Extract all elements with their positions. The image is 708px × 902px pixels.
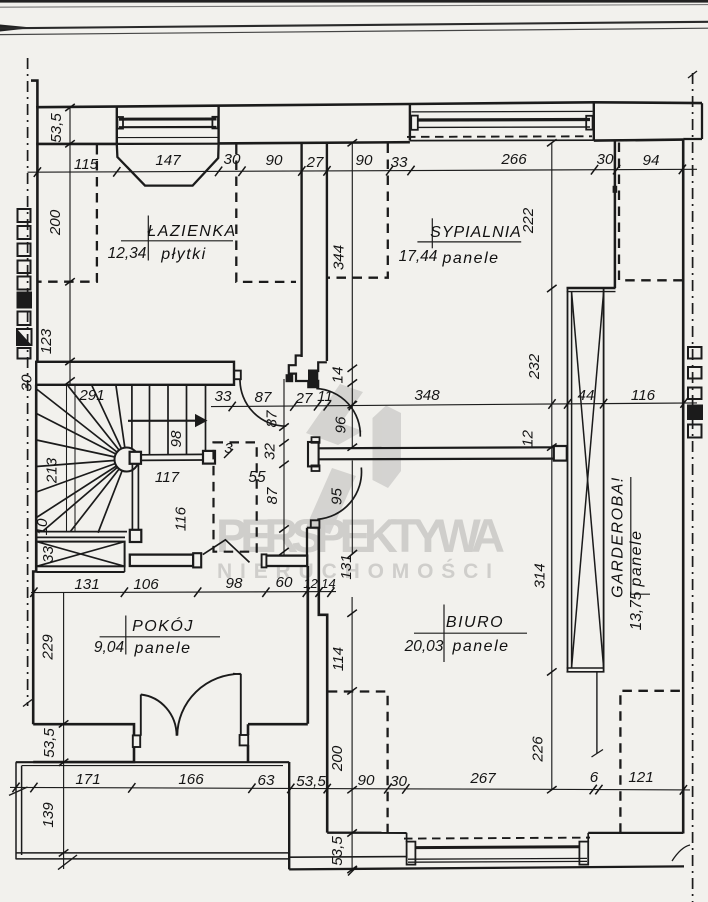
svg-text:171: 171 bbox=[75, 771, 100, 788]
svg-text:11: 11 bbox=[317, 388, 333, 405]
svg-text:96: 96 bbox=[333, 416, 350, 433]
svg-text:12: 12 bbox=[520, 430, 537, 447]
svg-text:344: 344 bbox=[331, 245, 348, 270]
svg-text:panele: panele bbox=[451, 638, 509, 655]
svg-text:10: 10 bbox=[34, 518, 51, 535]
svg-text:14: 14 bbox=[330, 367, 347, 384]
svg-text:232: 232 bbox=[526, 353, 543, 380]
svg-text:30: 30 bbox=[390, 773, 407, 790]
svg-text:200: 200 bbox=[47, 209, 64, 236]
svg-text:226: 226 bbox=[530, 736, 547, 763]
svg-text:PERSPEKTYWA: PERSPEKTYWA bbox=[216, 509, 506, 562]
svg-text:53,5: 53,5 bbox=[48, 113, 65, 143]
svg-text:200: 200 bbox=[329, 745, 346, 772]
svg-text:114: 114 bbox=[330, 647, 347, 671]
svg-text:53,5: 53,5 bbox=[41, 728, 58, 758]
svg-text:13,75: 13,75 bbox=[628, 591, 645, 630]
svg-text:60: 60 bbox=[276, 574, 293, 591]
svg-text:27: 27 bbox=[295, 390, 313, 407]
svg-text:147: 147 bbox=[155, 152, 181, 169]
svg-text:267: 267 bbox=[469, 770, 496, 787]
svg-text:222: 222 bbox=[520, 207, 537, 234]
svg-text:116: 116 bbox=[631, 387, 656, 404]
svg-text:94: 94 bbox=[643, 152, 660, 169]
svg-text:33: 33 bbox=[40, 546, 57, 563]
svg-text:90: 90 bbox=[358, 772, 375, 789]
svg-text:123: 123 bbox=[38, 328, 55, 354]
svg-text:6: 6 bbox=[590, 769, 599, 786]
svg-text:30: 30 bbox=[224, 151, 241, 168]
svg-text:117: 117 bbox=[155, 469, 180, 486]
svg-text:NIERUCHOMOŚCI: NIERUCHOMOŚCI bbox=[217, 559, 499, 583]
svg-text:95: 95 bbox=[329, 488, 346, 505]
svg-text:30: 30 bbox=[19, 374, 36, 391]
svg-text:3: 3 bbox=[224, 440, 233, 457]
svg-text:30: 30 bbox=[597, 151, 614, 168]
svg-text:266: 266 bbox=[500, 151, 527, 168]
svg-text:GARDEROBA!: GARDEROBA! bbox=[610, 476, 627, 598]
svg-text:87: 87 bbox=[264, 487, 281, 504]
svg-text:291: 291 bbox=[78, 387, 104, 404]
svg-text:53,5: 53,5 bbox=[296, 773, 326, 790]
svg-text:ŁAZIENKA: ŁAZIENKA bbox=[147, 223, 236, 240]
svg-text:131: 131 bbox=[74, 576, 99, 593]
svg-text:116: 116 bbox=[173, 506, 190, 531]
svg-text:BIURO: BIURO bbox=[446, 614, 504, 631]
svg-text:98: 98 bbox=[168, 430, 185, 447]
svg-text:płytki: płytki bbox=[160, 246, 206, 263]
svg-text:panele: panele bbox=[628, 529, 645, 587]
svg-text:348: 348 bbox=[414, 387, 440, 404]
svg-text:53,5: 53,5 bbox=[329, 836, 346, 866]
svg-text:87: 87 bbox=[255, 389, 272, 406]
svg-text:12: 12 bbox=[303, 576, 318, 591]
svg-text:panele: panele bbox=[441, 250, 499, 267]
svg-text:14: 14 bbox=[321, 576, 335, 591]
svg-text:33: 33 bbox=[215, 388, 232, 405]
svg-text:9,04: 9,04 bbox=[94, 639, 125, 656]
svg-text:229: 229 bbox=[40, 634, 57, 661]
svg-text:27: 27 bbox=[306, 154, 324, 171]
svg-text:139: 139 bbox=[40, 802, 57, 828]
svg-text:131: 131 bbox=[338, 554, 355, 579]
svg-text:90: 90 bbox=[266, 152, 283, 169]
svg-text:55: 55 bbox=[248, 469, 266, 486]
svg-text:20,03: 20,03 bbox=[404, 638, 444, 655]
svg-text:POKÓJ: POKÓJ bbox=[132, 616, 194, 635]
svg-text:17,44: 17,44 bbox=[399, 248, 438, 265]
svg-text:SYPIALNIA: SYPIALNIA bbox=[430, 224, 522, 241]
svg-text:87: 87 bbox=[263, 410, 280, 427]
svg-text:121: 121 bbox=[628, 769, 653, 786]
svg-text:33: 33 bbox=[391, 154, 408, 171]
svg-text:32: 32 bbox=[262, 443, 279, 460]
svg-text:90: 90 bbox=[356, 152, 373, 169]
svg-text:12,34: 12,34 bbox=[108, 245, 147, 262]
svg-text:63: 63 bbox=[258, 772, 275, 789]
svg-text:115: 115 bbox=[74, 156, 99, 173]
svg-text:314: 314 bbox=[532, 563, 549, 588]
svg-text:98: 98 bbox=[226, 575, 243, 592]
svg-text:213: 213 bbox=[44, 457, 61, 484]
svg-text:panele: panele bbox=[133, 640, 191, 657]
svg-text:44: 44 bbox=[578, 387, 595, 404]
svg-text:166: 166 bbox=[178, 771, 204, 788]
svg-text:106: 106 bbox=[133, 576, 159, 593]
